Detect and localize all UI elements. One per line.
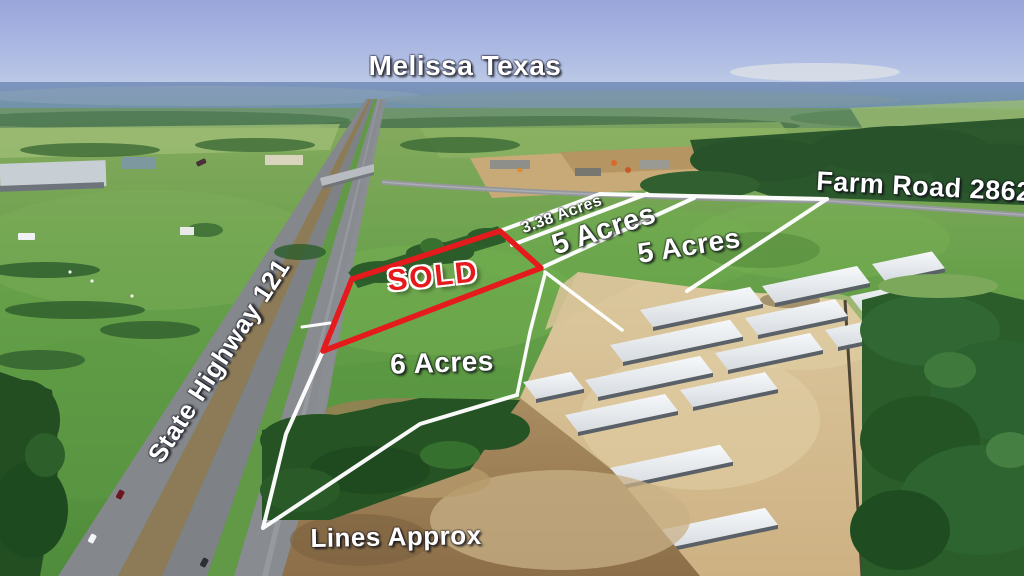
parcel-6-label: 6 Acres bbox=[390, 345, 495, 381]
location-title: Melissa Texas bbox=[369, 50, 562, 82]
scene-art bbox=[0, 0, 1024, 576]
disclaimer-label: Lines Approx bbox=[310, 520, 482, 554]
aerial-listing-photo: Melissa Texas Farm Road 2862 State Highw… bbox=[0, 0, 1024, 576]
forest-right bbox=[850, 274, 1024, 576]
